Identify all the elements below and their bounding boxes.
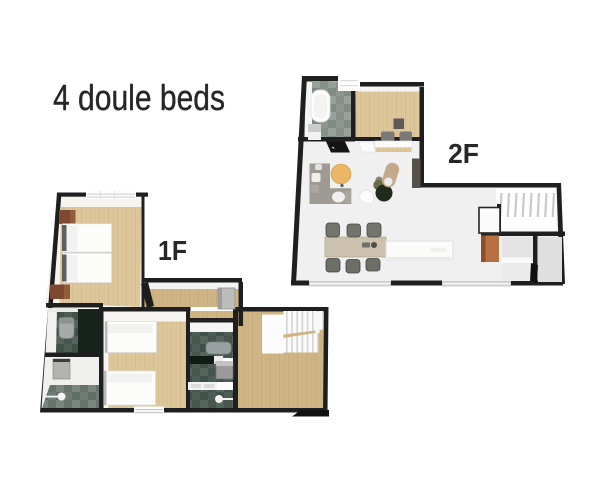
svg-text:4 doule beds: 4 doule beds: [53, 77, 225, 118]
svg-text:2F: 2F: [448, 138, 479, 169]
svg-text:1F: 1F: [158, 235, 187, 266]
